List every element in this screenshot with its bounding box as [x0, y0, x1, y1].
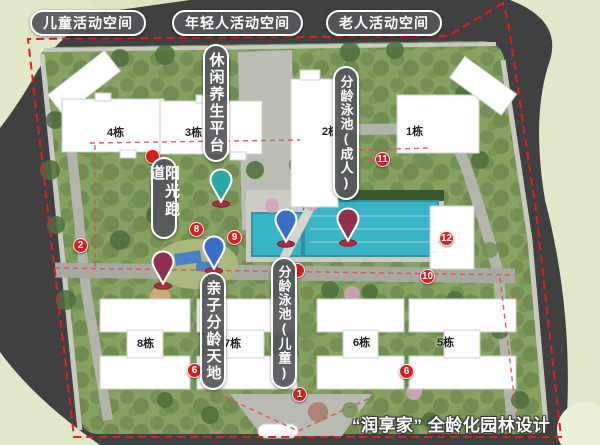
- kids-pool-pin: [273, 208, 299, 248]
- marker-6-right: 6: [399, 364, 414, 379]
- marker-11: 11: [375, 152, 390, 167]
- marker-12: 12: [439, 231, 454, 246]
- marker-10: 10: [420, 269, 435, 284]
- site-plan-map: [0, 0, 600, 445]
- feature-label-sun-track: 阳光跑道: [151, 157, 177, 239]
- page-title: “润享家” 全龄化园林设计: [352, 411, 550, 436]
- building-label-3: 3栋: [185, 124, 202, 140]
- adult-pool-pin: [335, 207, 361, 247]
- zone-label-elderly: 老人活动空间: [326, 10, 442, 36]
- marker-9: 9: [227, 230, 242, 245]
- building-label-7: 7栋: [224, 335, 241, 351]
- sun-track-pin: [150, 250, 176, 290]
- feature-label-adult-pool: 分龄泳池(成人): [333, 66, 359, 200]
- parent-child-zone-pin: [201, 235, 227, 275]
- marker-1: 1: [292, 387, 307, 402]
- building-label-4: 4栋: [107, 124, 124, 140]
- feature-label-parent-child-zone: 亲子分龄天地: [200, 272, 226, 390]
- building-label-6: 6栋: [353, 334, 370, 350]
- building-label-1: 1栋: [406, 123, 423, 139]
- leisure-wellness-pin: [208, 168, 234, 208]
- building-label-5: 5栋: [437, 334, 454, 350]
- feature-label-kids-pool: 分龄泳池(儿童): [271, 257, 297, 389]
- marker-2: 2: [73, 238, 88, 253]
- feature-label-wellness-platform: 休闲养生平台: [203, 44, 229, 162]
- building-label-8: 8栋: [137, 335, 154, 351]
- zone-label-young: 年轻人活动空间: [172, 10, 303, 36]
- landscape-masterplan: 1 2 6 6 8 9 10 11 12 4栋 3栋 2栋 1栋 8栋 7栋 6…: [0, 0, 600, 445]
- zone-label-children: 儿童活动空间: [30, 10, 146, 36]
